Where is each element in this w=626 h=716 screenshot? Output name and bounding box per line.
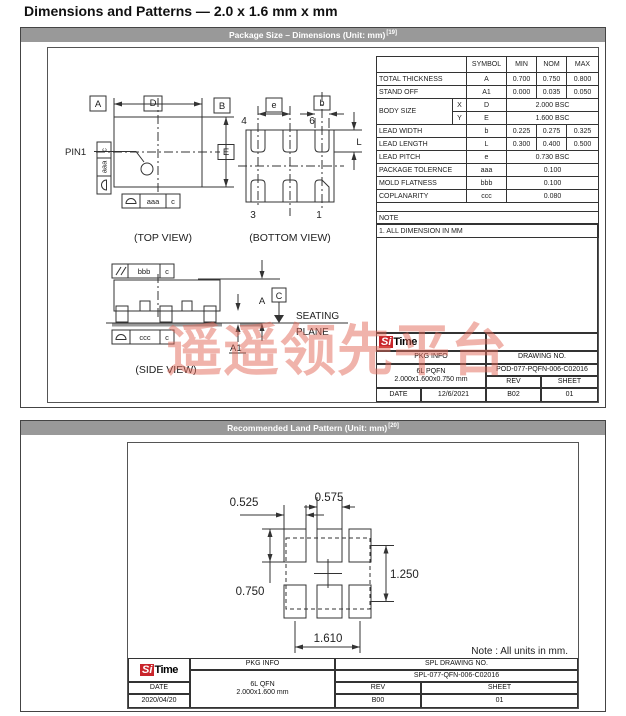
pin4-label: 4 xyxy=(241,116,247,127)
seating-plane-label-1: SEATING xyxy=(296,311,339,322)
bottom-view: e b L xyxy=(238,92,362,244)
pin1-label: PIN1 xyxy=(65,147,86,158)
dim-e-label: E xyxy=(223,147,229,158)
dim-row-pitch: 1.250 xyxy=(390,569,419,581)
sitime-logo: SiTime xyxy=(376,333,486,351)
rev-value: B02 xyxy=(486,388,541,402)
dim-center-pad-width: 0.575 xyxy=(315,492,344,504)
svg-text:c: c xyxy=(171,197,175,206)
table-row: MOLD FLATNESSbbb0.100 xyxy=(377,177,599,190)
col-max: MAX xyxy=(567,57,599,73)
units-note: Note : All units in mm. xyxy=(471,646,568,657)
profile-symbol-icon xyxy=(126,199,136,204)
section2-header-bar: Recommended Land Pattern (Unit: mm)[20] xyxy=(21,421,605,435)
pin3-label: 3 xyxy=(250,210,256,221)
svg-text:c: c xyxy=(165,333,169,342)
table-row: BODY SIZEXD2.000 BSC xyxy=(377,99,599,112)
profile-symbol-icon xyxy=(116,335,126,340)
date-value: 2020/04/20 xyxy=(128,694,190,708)
svg-text:ccc: ccc xyxy=(139,333,151,342)
table-row: LEAD LENGTHL0.3000.4000.500 xyxy=(377,138,599,151)
pin1-label-bottom: 1 xyxy=(316,210,322,221)
drawing-no-value: SPL-077-QFN-006-C02016 xyxy=(335,670,578,682)
pkg-info-label: PKG INFO xyxy=(190,658,335,670)
sheet-label: SHEET xyxy=(541,376,598,388)
col-min: MIN xyxy=(507,57,537,73)
datum-triangle-icon xyxy=(274,315,284,323)
drawing-frame: D A B E PIN1 xyxy=(47,47,599,403)
date-label: DATE xyxy=(128,682,190,694)
fcf-top-side-view: bbb c xyxy=(112,264,174,278)
top-view-caption: (TOP VIEW) xyxy=(134,232,192,244)
table-row: STAND OFFA10.0000.0350.050 xyxy=(377,86,599,99)
top-view: D A B E PIN1 xyxy=(65,96,234,244)
svg-text:aaa: aaa xyxy=(100,160,109,173)
col-nom: NOM xyxy=(537,57,567,73)
package-views-drawing: D A B E PIN1 xyxy=(48,48,378,402)
section2-header-footnote: [20] xyxy=(388,423,399,429)
datasheet-page: { "page": { "title": "Dimensions and Pat… xyxy=(0,0,626,716)
parallel-symbol-icon xyxy=(116,267,121,275)
table-row: LEAD WIDTHb0.2250.2750.325 xyxy=(377,125,599,138)
sheet-value: 01 xyxy=(421,694,578,708)
fcf-bottom-top-view: aaa c xyxy=(122,194,180,208)
dim-col-span: 1.610 xyxy=(314,633,343,645)
svg-text:c: c xyxy=(165,267,169,276)
svg-text:c: c xyxy=(100,148,109,152)
title-block-pod: SiTime PKG INFO DRAWING NO. 6L PQFN 2.00… xyxy=(376,333,598,402)
seating-plane-label-2: PLANE xyxy=(296,327,329,338)
col-symbol: SYMBOL xyxy=(467,57,507,73)
package-dimensions-section: Package Size – Dimensions (Unit: mm)[19]… xyxy=(20,27,606,408)
drawing-no-label: DRAWING NO. xyxy=(486,351,598,364)
pkg-info-value: 6L QFN 2.000x1.600 mm xyxy=(190,670,335,708)
rev-value: B00 xyxy=(335,694,421,708)
pkg-info-value: 6L PQFN 2.000x1.600x0.750 mm xyxy=(376,364,486,388)
table-row: PACKAGE TOLERNCEaaa0.100 xyxy=(377,164,599,177)
section2-header-text: Recommended Land Pattern (Unit: mm) xyxy=(227,424,387,433)
section1-header-text: Package Size – Dimensions (Unit: mm) xyxy=(229,31,385,40)
pin1-marker xyxy=(141,163,153,175)
sheet-value: 01 xyxy=(541,388,598,402)
dim-pad-height: 0.750 xyxy=(236,586,265,598)
profile-symbol-icon xyxy=(102,180,107,190)
table-row: LEAD PITCHe0.730 BSC xyxy=(377,151,599,164)
table-row: TOTAL THICKNESSA0.7000.7500.800 xyxy=(377,73,599,86)
datum-c-label: C xyxy=(276,291,283,301)
land-pattern-drawing: 0.575 0.525 0.750 xyxy=(128,443,578,658)
fcf-bottom-side-view: ccc c xyxy=(112,330,174,344)
table-row: COPLANARITYccc0.080 xyxy=(377,190,599,203)
sheet-label: SHEET xyxy=(421,682,578,694)
title-block-spl: SiTime DATE 2020/04/20 PKG INFO 6L QFN 2… xyxy=(128,658,578,708)
rev-label: REV xyxy=(335,682,421,694)
page-title: Dimensions and Patterns — 2.0 x 1.6 mm x… xyxy=(24,3,338,19)
svg-text:aaa: aaa xyxy=(147,197,160,206)
land-pattern-section: Recommended Land Pattern (Unit: mm)[20] xyxy=(20,420,606,712)
dim-a-label: A xyxy=(259,296,266,307)
dim-outer-pad-width: 0.525 xyxy=(230,497,259,509)
rev-label: REV xyxy=(486,376,541,388)
bottom-view-caption: (BOTTOM VIEW) xyxy=(249,232,330,244)
pkg-info-label: PKG INFO xyxy=(376,351,486,364)
fcf-left: c aaa xyxy=(97,142,111,194)
land-pattern-frame: 0.575 0.525 0.750 xyxy=(127,442,579,709)
drawing-no-value: POD-077-PQFN-006-C02016 xyxy=(486,364,598,376)
side-view: bbb c xyxy=(106,260,348,376)
dim-l-label: L xyxy=(356,137,361,148)
pin6-label: 6 xyxy=(309,116,315,127)
datum-b-label: B xyxy=(219,101,225,112)
svg-text:bbb: bbb xyxy=(138,267,151,276)
dim-a1-label: A1 xyxy=(230,343,242,354)
section1-header-footnote: [19] xyxy=(386,30,397,36)
date-label: DATE xyxy=(376,388,421,402)
side-view-caption: (SIDE VIEW) xyxy=(135,364,196,376)
section1-header-bar: Package Size – Dimensions (Unit: mm)[19] xyxy=(21,28,605,42)
dim-b-label: b xyxy=(319,98,324,108)
datum-a-label: A xyxy=(95,99,102,110)
dim-d-label: D xyxy=(150,98,157,109)
drawing-no-label: SPL DRAWING NO. xyxy=(335,658,578,670)
dim-e-pitch-label: e xyxy=(271,100,276,110)
date-value: 12/6/2021 xyxy=(421,388,486,402)
empty-panel xyxy=(376,223,598,333)
dimension-table: SYMBOL MIN NOM MAX TOTAL THICKNESSA0.700… xyxy=(376,56,599,238)
sitime-logo: SiTime xyxy=(128,658,190,682)
